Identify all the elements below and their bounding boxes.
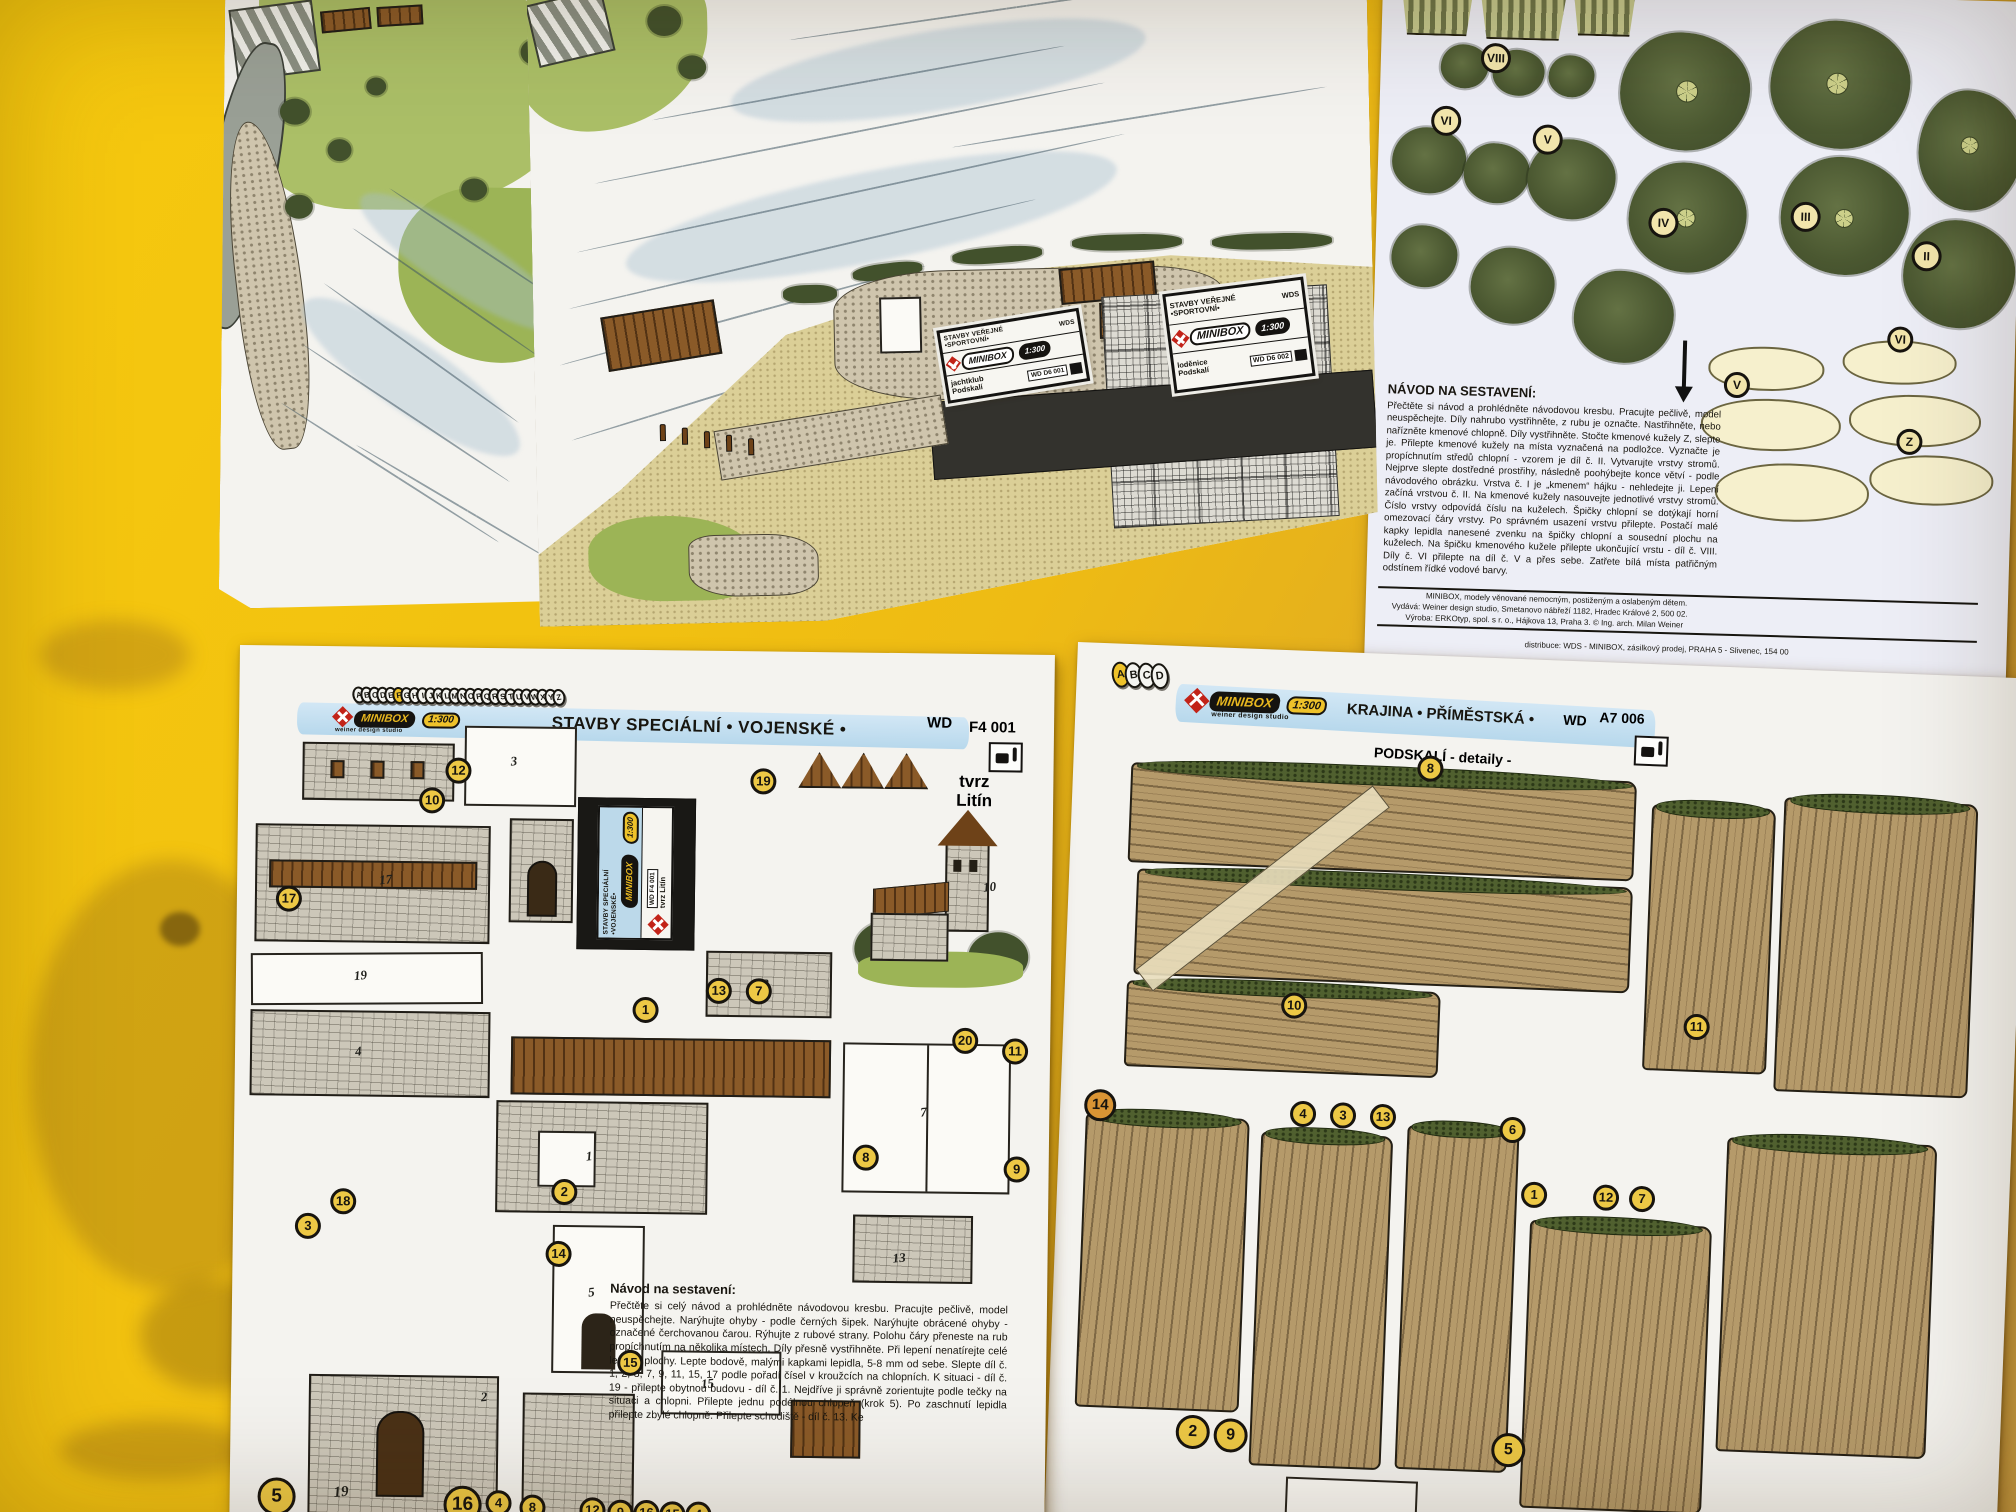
black-square [1294, 348, 1307, 360]
part-badge: 4 [1290, 1100, 1317, 1127]
rock-column-part [1773, 797, 1978, 1098]
model-part-gate-tower [509, 818, 574, 923]
part-badge: 12 [1593, 1184, 1620, 1211]
tree-cluster [327, 139, 351, 161]
assembly-instructions: Návod na sestavení: Přečtěte si celý náv… [607, 1282, 1008, 1512]
brand-block: MINIBOX 1:300 weiner design studio [335, 708, 460, 736]
part-number: 1 [585, 1149, 593, 1163]
brand-logo: MINIBOX [1190, 321, 1251, 346]
shore-bushes [952, 244, 1043, 267]
catalog-code: WD D6 001 [1027, 364, 1068, 381]
part-number: 3 [510, 754, 518, 768]
part-badge: 12 [445, 758, 471, 784]
part-number: 5 [588, 1285, 596, 1299]
table-stain [60, 1420, 250, 1480]
sheet-rocks-podskali: ABCD MINIBOX 1:300 weiner design studio … [1044, 642, 2016, 1512]
alphabet-strip: ABCDEFGHIJKLMNOPQRSTUVWXYZ [357, 684, 565, 706]
tree-layer-part [1548, 55, 1595, 98]
rock-cliff-part [1128, 762, 1637, 881]
castle-illustration [848, 800, 1034, 997]
kit-label-boathouse: STAVBY VEŘEJNÉ •SPORTOVNÍ• WDS MINIBOX 1… [1162, 277, 1315, 394]
sheet-marina-podskali: STAVBY VEŘEJNÉ •SPORTOVNÍ• WDS MINIBOX 1… [526, 0, 1379, 627]
mooring-bollard [748, 438, 754, 455]
part-number: 13 [892, 1251, 906, 1265]
part-badge: 9 [1213, 1418, 1248, 1453]
wds-mark: WDS [1058, 318, 1075, 327]
part-badge: 6 [1499, 1117, 1526, 1144]
assembly-diagram-layer [1714, 461, 1870, 523]
catalog-code: A7 006 [1599, 710, 1645, 727]
wds-mark: WDS [1281, 290, 1299, 301]
photo-of-paper-model-sheets: STAVBY VEŘEJNÉ •SPORTOVNÍ• WDS MINIBOX 1… [0, 0, 2016, 1512]
shore-bushes [1072, 233, 1182, 251]
part-badge: 3 [295, 1213, 321, 1239]
minibox-diamond-icon [332, 706, 353, 727]
model-part-wall-balcony [254, 823, 490, 944]
mooring-bollard [660, 424, 666, 441]
table-stain [160, 912, 200, 946]
minibox-diamond-icon [1184, 688, 1209, 713]
tree-layer-part [1902, 219, 2016, 330]
part-badge: 19 [750, 768, 776, 794]
model-part-roof [464, 726, 577, 807]
diagram-badge: Z [1896, 429, 1923, 456]
footbridge-planks [320, 7, 372, 34]
rock-pillar-part [1394, 1125, 1519, 1473]
model-part-roof-strip [798, 752, 928, 790]
layer-number-badge: VI [1431, 105, 1462, 136]
catalog-code: WD D6 002 [1249, 350, 1292, 366]
diagram-badge: V [1724, 372, 1751, 399]
part-badge: 7 [746, 978, 772, 1004]
part-number: 19 [333, 1486, 349, 1500]
scale-logo: 1:300 [623, 810, 639, 845]
part-badge: 11 [1002, 1038, 1028, 1064]
tree-cluster [285, 195, 313, 219]
assembly-diagram-layer [1869, 454, 1994, 507]
model-part-balcony-row [511, 1036, 832, 1098]
part-badge: 3 [1330, 1102, 1357, 1129]
rock-pillar-part [1249, 1131, 1394, 1470]
thumbs-up-icon [989, 742, 1023, 772]
part-badge: 5 [257, 1477, 295, 1512]
side-label-series: STAVBY SPECIÁLNÍ [602, 869, 610, 934]
rock-pillar-part [1075, 1113, 1250, 1413]
instructions-body: Přečtěte si celý návod a prohlédněte náv… [609, 1300, 1008, 1428]
clubhouse-building [879, 297, 922, 354]
assembly-instructions: NÁVOD NA SESTAVENÍ: Přečtěte si návod a … [1382, 382, 1722, 619]
alphabet-strip: ABCD [1116, 662, 1169, 690]
scale-logo: 1:300 [421, 712, 461, 728]
brand-logo: MINIBOX [621, 854, 639, 909]
instructions-body: Přečtěte si návod a prohlédněte návodovo… [1383, 400, 1722, 584]
wd-mark: WD [1563, 713, 1587, 729]
black-square [1069, 361, 1083, 374]
part-badge: 17 [276, 885, 302, 911]
part-number: 17 [379, 872, 393, 886]
pier-deck [600, 299, 722, 372]
brand-block: MINIBOX 1:300 weiner design studio [1187, 690, 1327, 722]
instructions-title: Návod na sestavení: [610, 1282, 1008, 1301]
rock-cliff-part [1124, 980, 1441, 1078]
trunk-cone-part [1400, 0, 1476, 37]
part-badge: 4 [485, 1490, 511, 1512]
river-water [725, 0, 1152, 143]
subject-line1: tvrz [956, 772, 992, 791]
tree-layer-part [1391, 224, 1459, 288]
part-number: 4 [354, 1044, 362, 1058]
tree-layer-part [1573, 269, 1676, 364]
rock-pillar-part [1715, 1137, 1937, 1459]
rock-column-part [1642, 804, 1776, 1075]
part-badge: 7 [1629, 1186, 1656, 1213]
tree-layer-part [1391, 126, 1467, 194]
subject-place: Podskalí [1178, 366, 1210, 378]
rock-pillar-part [1519, 1220, 1712, 1512]
shore-bushes [1212, 232, 1332, 251]
part-badge: 18 [330, 1188, 356, 1214]
part-number: 19 [353, 968, 367, 982]
mooring-bollard [704, 431, 710, 448]
tree-layer-part [1463, 142, 1531, 204]
kit-side-label: STAVBY SPECIÁLNÍ •VOJENSKÉ• MINIBOX 1:30… [596, 805, 674, 940]
thumbs-up-icon [1634, 735, 1669, 766]
trunk-cone-part [1572, 0, 1637, 37]
side-label-series2: •VOJENSKÉ• [610, 893, 618, 935]
scale-logo: 1:300 [1255, 316, 1290, 337]
model-part-keep-wall [495, 1100, 708, 1215]
scale-logo: 1:300 [1018, 340, 1051, 361]
model-part-small [1284, 1477, 1418, 1512]
subject-name: tvrz Litín [659, 877, 668, 908]
tree-layer-part [1470, 247, 1556, 325]
part-badge: 13 [1369, 1104, 1396, 1131]
trunk-cone-part [1478, 0, 1570, 41]
footer-distribution: distribuce: WDS - MINIBOX, zásilkový pro… [1524, 640, 1788, 657]
catalog-code: F4 001 [969, 720, 1016, 737]
mooring-bollard [726, 435, 732, 452]
minibox-diamond-icon [1171, 329, 1189, 347]
part-badge: 10 [419, 787, 445, 813]
part-number: 10 [983, 880, 997, 894]
sheet-trees: VIII VI V IV III II V VI Z NÁVOD NA SEST… [1364, 0, 2016, 692]
part-badge: 2 [1175, 1414, 1210, 1449]
minibox-diamond-icon [946, 356, 961, 371]
sheet-castle-tvrz-litin: ABCDEFGHIJKLMNOPQRSTUVWXYZ MINIBOX 1:300… [229, 645, 1055, 1512]
bank-cobbles [688, 533, 819, 598]
catalog-code: WD F4 001 [647, 869, 658, 908]
model-part-stairs [852, 1215, 973, 1284]
tree-cluster [280, 98, 310, 124]
shore-bushes [783, 284, 837, 303]
footbridge-planks [376, 4, 423, 27]
brand-logo: MINIBOX [353, 710, 416, 728]
part-badge: 1 [1521, 1181, 1548, 1208]
part-badge: 9 [1003, 1156, 1029, 1182]
tree-cluster [678, 55, 706, 80]
tree-cluster [366, 77, 386, 95]
wd-mark: WD [927, 715, 952, 731]
table-stain [40, 620, 190, 690]
part-badge: 14 [545, 1241, 571, 1267]
mooring-bollard [682, 428, 688, 445]
scale-logo: 1:300 [1285, 696, 1328, 715]
brand-logo: MINIBOX [1209, 691, 1282, 714]
part-badge: 2 [551, 1179, 577, 1205]
part-badge: 13 [706, 978, 732, 1004]
river-current-line [355, 444, 554, 563]
part-badge: 1 [632, 997, 658, 1023]
tree-cluster [461, 178, 487, 200]
model-part-long-wall [250, 1009, 491, 1098]
assembly-arrow-icon [1682, 341, 1687, 389]
part-number: 15 [700, 1376, 714, 1390]
part-number: 7 [920, 1105, 928, 1119]
part-number: 2 [480, 1390, 488, 1404]
